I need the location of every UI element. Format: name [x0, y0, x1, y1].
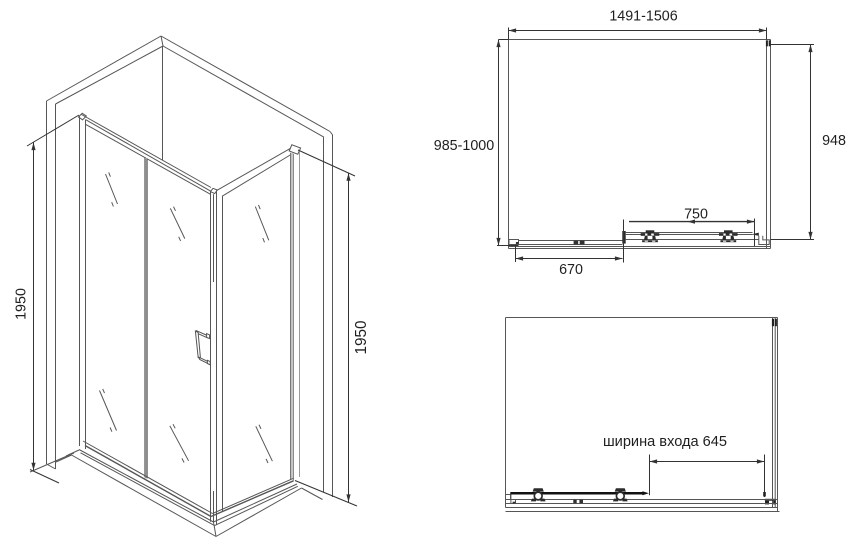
svg-text:670: 670	[559, 262, 583, 278]
svg-text:948: 948	[822, 133, 846, 149]
svg-text:ширина входа 645: ширина входа 645	[603, 434, 727, 450]
svg-text:750: 750	[684, 206, 708, 222]
svg-text:1491-1506: 1491-1506	[609, 8, 677, 24]
svg-text:985-1000: 985-1000	[434, 138, 494, 154]
svg-text:1950: 1950	[14, 288, 30, 320]
svg-text:1950: 1950	[353, 320, 370, 354]
